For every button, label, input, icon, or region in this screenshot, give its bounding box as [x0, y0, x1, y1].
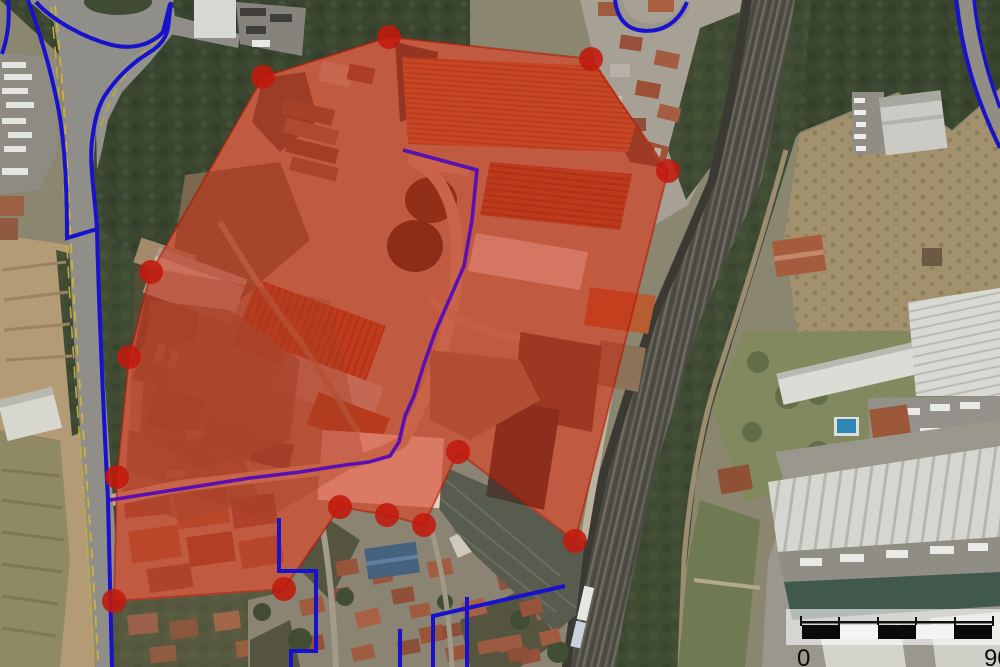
svg-text:0: 0 [797, 645, 810, 667]
svg-text:90: 90 [984, 645, 1000, 667]
